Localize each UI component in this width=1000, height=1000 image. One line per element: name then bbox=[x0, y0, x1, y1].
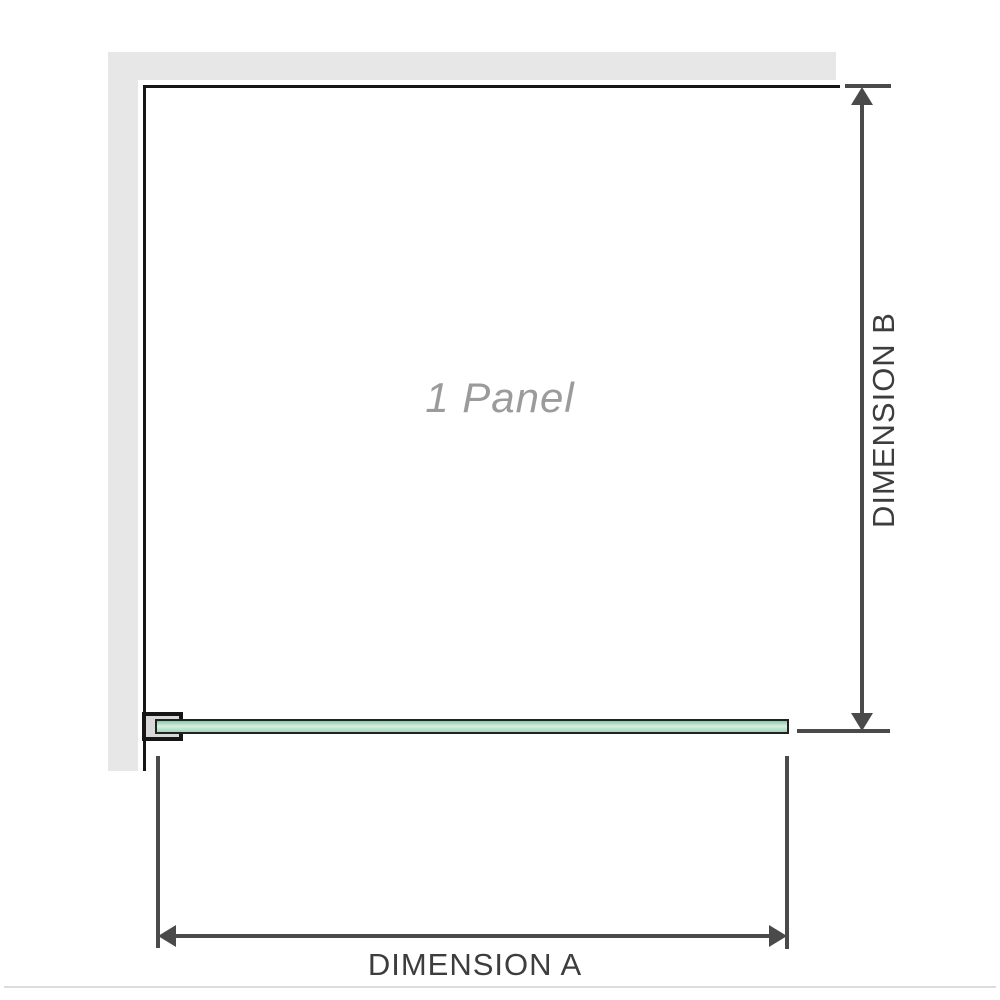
bottom-faint-line bbox=[4, 986, 996, 988]
frame-left-line bbox=[143, 85, 146, 771]
shower-screen-diagram: 1 Panel DIMENSION B DIMENSION A bbox=[0, 0, 1000, 1000]
dimension-a-label: DIMENSION A bbox=[320, 946, 630, 984]
panel-count-label: 1 Panel bbox=[350, 372, 650, 424]
frame-top-line bbox=[143, 85, 840, 88]
dimension-b-bottom-tick bbox=[797, 729, 890, 733]
dimension-a-right-extension-line bbox=[785, 756, 789, 949]
dimension-a-line bbox=[170, 934, 775, 938]
dimension-a-left-extension-line bbox=[156, 756, 160, 948]
dimension-b-arrow-down-icon bbox=[851, 713, 873, 731]
dimension-a-arrow-right-icon bbox=[769, 925, 787, 947]
wall-top bbox=[108, 52, 836, 80]
glass-panel bbox=[155, 719, 789, 734]
wall-left bbox=[108, 52, 138, 771]
dimension-b-label: DIMENSION B bbox=[864, 260, 904, 580]
dimension-b-arrow-up-icon bbox=[851, 87, 873, 105]
dimension-a-arrow-left-icon bbox=[158, 925, 176, 947]
